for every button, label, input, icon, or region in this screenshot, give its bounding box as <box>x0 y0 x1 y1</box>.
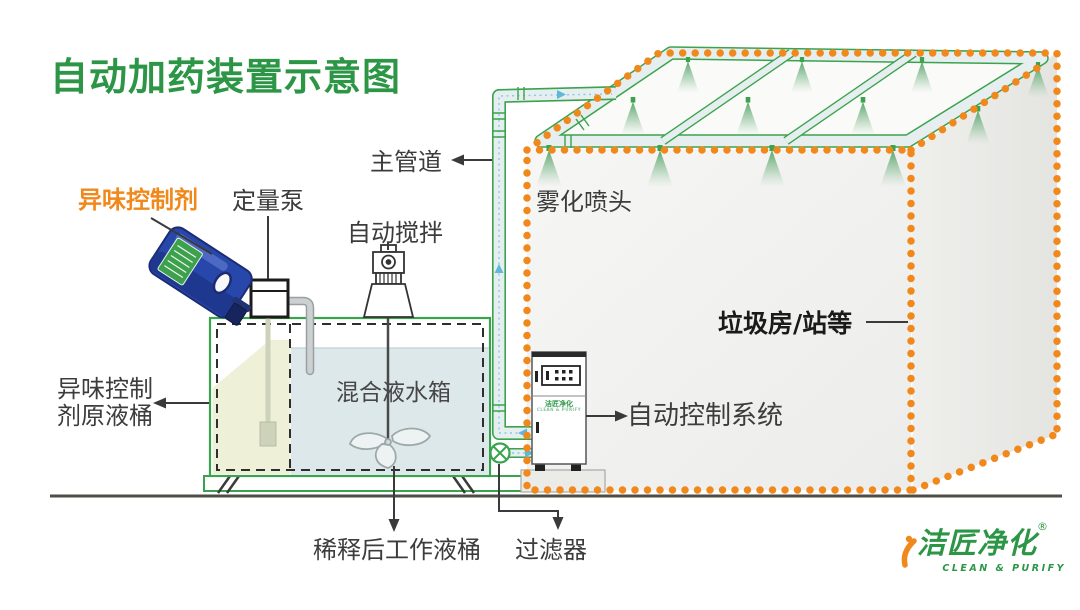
label-mixed-tank: 混合液水箱 <box>336 381 451 406</box>
label-control-system: 自动控制系统 <box>627 402 783 431</box>
diagram-page: 自动加药装置示意图 异味控制剂 定量泵 自动搅拌 主管道 雾化喷头 垃圾房/站等… <box>0 0 1080 610</box>
cabinet-brand-mark: 洁匠净化 CLEAN & PURIFY <box>533 401 585 412</box>
filter-icon <box>491 444 510 463</box>
page-title: 自动加药装置示意图 <box>50 57 401 99</box>
label-stock-barrel-line1: 异味控制 <box>57 376 153 403</box>
label-main-pipe: 主管道 <box>370 149 442 175</box>
label-metering-pump: 定量泵 <box>232 188 304 214</box>
pump-body <box>251 280 288 317</box>
brand-logo: 洁匠净化® CLEAN & PURIFY <box>901 520 1066 574</box>
label-stock-barrel-line2: 剂原液桶 <box>57 403 153 430</box>
brand-name: 洁匠净化 <box>917 526 1037 560</box>
brand-swoosh-icon <box>901 534 923 568</box>
brand-slogan: CLEAN & PURIFY <box>901 563 1066 574</box>
tank-stand <box>204 476 530 491</box>
label-spray-nozzle: 雾化喷头 <box>536 189 632 215</box>
label-garbage-room: 垃圾房/站等 <box>718 310 852 338</box>
stirrer-motor <box>364 245 413 317</box>
label-diluted-barrel: 稀释后工作液桶 <box>313 537 481 563</box>
label-auto-stir: 自动搅拌 <box>347 220 443 246</box>
label-stock-barrel: 异味控制 剂原液桶 <box>57 376 153 430</box>
brand-registered-mark: ® <box>1037 520 1048 533</box>
chemical-jug <box>146 224 268 329</box>
label-odor-agent: 异味控制剂 <box>78 187 198 213</box>
suction-foot <box>260 422 276 446</box>
label-filter: 过滤器 <box>515 537 587 563</box>
cabinet-brand-slogan: CLEAN & PURIFY <box>533 408 585 412</box>
